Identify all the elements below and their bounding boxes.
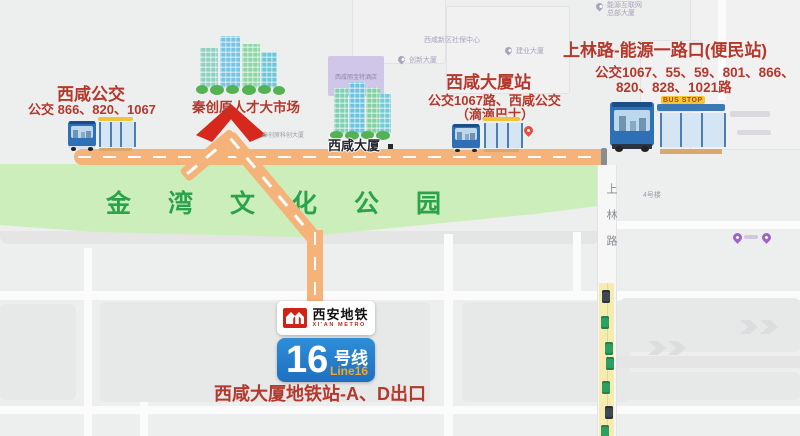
- tree-icon: [273, 86, 285, 95]
- xixian-tower-buildings: 西咸丽宝特酒店: [328, 56, 394, 140]
- bus-icon: [452, 124, 480, 152]
- background-road: [573, 232, 581, 292]
- car-icon: [602, 381, 610, 394]
- stop-title-shanglin: 上林路-能源一路口(便民站): [563, 36, 767, 61]
- tree-icon: [242, 85, 256, 95]
- metro-brand-card: 西安地铁 XI'AN METRO: [277, 301, 375, 335]
- shanglin-road-label: 上林路: [603, 183, 619, 261]
- building-icon: [261, 52, 277, 88]
- tree-icon: [210, 85, 224, 95]
- faint-label-social-security: 西咸新区社保中心: [424, 35, 480, 45]
- xixian-tower-label: 西咸大厦: [328, 135, 380, 154]
- unreadable-label-bar: [744, 235, 758, 239]
- talent-market-label: 秦创原人才大市场: [192, 96, 300, 116]
- station-exit-label: 西咸大厦地铁站-A、D出口: [214, 380, 426, 406]
- background-road: [444, 234, 453, 436]
- building-icon: [349, 82, 365, 134]
- bus-icon: [68, 121, 96, 151]
- car-icon: [601, 425, 609, 436]
- map-pin-icon: [595, 2, 605, 12]
- purple-pin-icon: [760, 231, 773, 244]
- stop-routes-xixian-bus: 公交 866、820、1067: [28, 99, 156, 118]
- faint-label-sci-tower: 秦创原科创大厦: [262, 130, 304, 139]
- bus-shelter-icon: BUS STOP: [657, 96, 725, 154]
- bus-shelter-icon: [98, 117, 133, 151]
- building-icon: [334, 88, 348, 134]
- tree-icon: [258, 85, 271, 94]
- tree-icon: [196, 85, 208, 94]
- metro-brand-cn: 西安地铁: [312, 308, 368, 321]
- background-road: [598, 221, 800, 229]
- car-icon: [601, 316, 609, 329]
- map-canvas: 金湾文化公园 秦创原人才大市场 秦创原科创大厦 西咸丽宝特酒店 西咸大厦: [0, 0, 800, 436]
- bus-shelter-icon: [483, 117, 520, 152]
- unreadable-label-bar: [737, 130, 771, 135]
- map-pin-icon: [522, 124, 535, 137]
- metro-brand-en: XI'AN METRO: [312, 323, 368, 329]
- bus-stop-sign: BUS STOP: [661, 96, 705, 104]
- background-block: [618, 372, 800, 400]
- line16-badge: 16 号线 Line16: [277, 338, 375, 382]
- faint-label-chuangxin: 创新大厦: [409, 55, 437, 65]
- road-end-cap: [601, 148, 607, 166]
- background-block: [0, 304, 76, 400]
- car-icon: [605, 342, 613, 355]
- purple-pin-icon: [731, 231, 744, 244]
- metro-access-road: [307, 230, 323, 304]
- building-icon: [379, 94, 391, 134]
- faint-label-building4: 4号楼: [643, 190, 661, 200]
- line-number: 16: [286, 338, 328, 382]
- bus-icon: [610, 102, 654, 152]
- label-dot: [388, 144, 393, 149]
- background-road: [0, 406, 800, 414]
- car-icon: [602, 290, 610, 303]
- background-road: [616, 356, 800, 368]
- car-icon: [605, 406, 613, 419]
- building-icon: [366, 87, 380, 134]
- hotel-label: 西咸丽宝特酒店: [335, 72, 377, 81]
- xian-metro-logo-icon: [283, 308, 307, 328]
- tree-icon: [226, 85, 239, 94]
- building-icon: [242, 44, 260, 88]
- faint-label-jianye: 建业大厦: [516, 46, 544, 56]
- building-icon: [220, 36, 240, 88]
- car-icon: [606, 357, 614, 370]
- background-road: [84, 248, 92, 436]
- unreadable-label-bar: [730, 111, 770, 117]
- talent-market-buildings: [196, 36, 288, 98]
- stop-routes-shanglin-2: 820、828、1021路: [616, 76, 732, 96]
- faint-label-hq-2: 总部大厦: [607, 8, 635, 18]
- line-en: Line16: [330, 364, 368, 378]
- building-icon: [200, 48, 218, 88]
